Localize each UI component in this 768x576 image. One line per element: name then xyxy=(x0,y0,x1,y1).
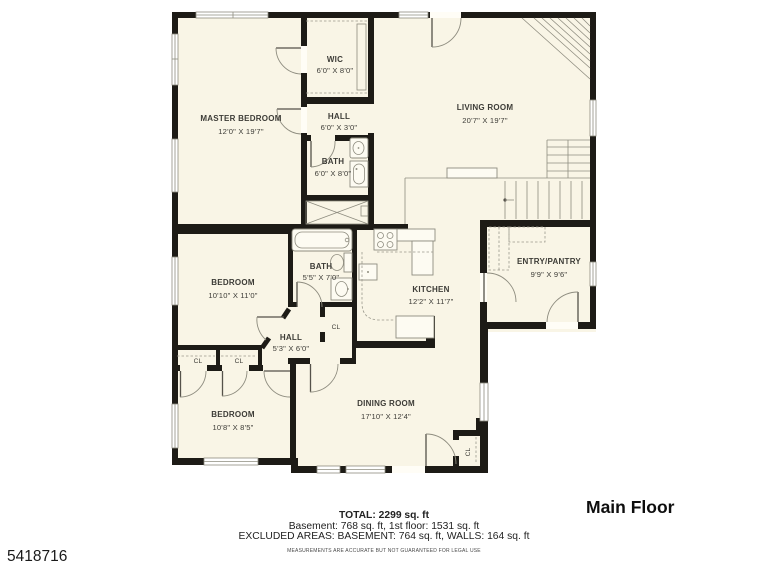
floor-plan-image: MASTER BEDROOM 12'0" X 19'7" WIC 6'0" X … xyxy=(0,0,768,576)
window xyxy=(399,12,428,18)
room-dims-bedroom-lower: 10'8" X 8'5" xyxy=(212,423,253,432)
room-dims-living-room: 20'7" X 19'7" xyxy=(462,116,508,125)
window xyxy=(204,458,258,465)
window xyxy=(172,404,178,448)
room-label-kitchen: KITCHEN xyxy=(412,285,449,294)
room-dims-master-bedroom: 12'0" X 19'7" xyxy=(218,127,264,136)
room-dims-entry-pantry: 9'9" X 9'6" xyxy=(531,270,568,279)
floor-title: Main Floor xyxy=(586,497,696,518)
room-dims-bath-main: 5'5" X 7'0" xyxy=(303,273,340,282)
floor-plan-page: MASTER BEDROOM 12'0" X 19'7" WIC 6'0" X … xyxy=(0,0,768,576)
closet-label: CL xyxy=(465,447,472,456)
window xyxy=(480,383,488,421)
room-label-bath-upper: BATH xyxy=(322,157,345,166)
room-dims-dining-room: 17'10" X 12'4" xyxy=(361,412,411,421)
closet-label: CL xyxy=(235,358,244,365)
listing-id: 5418716 xyxy=(7,548,67,566)
excluded-areas-text: EXCLUDED AREAS: BASEMENT: 764 sq. ft, WA… xyxy=(0,532,768,543)
window xyxy=(172,257,178,305)
bathtub-icon xyxy=(292,229,352,251)
room-dims-hall-lower: 5'3" X 6'0" xyxy=(273,344,310,353)
toilet-icon xyxy=(350,138,368,158)
room-label-bedroom-lower: BEDROOM xyxy=(211,410,255,419)
room-dims-hall-upper: 6'0" X 3'0" xyxy=(321,123,358,132)
room-label-bath-main: BATH xyxy=(310,262,333,271)
room-label-master-bedroom: MASTER BEDROOM xyxy=(200,114,281,123)
window xyxy=(346,466,385,473)
window xyxy=(172,34,178,85)
window xyxy=(172,139,178,192)
window xyxy=(590,262,596,286)
room-label-living-room: LIVING ROOM xyxy=(457,103,514,112)
room-dims-wic: 6'0" X 8'0" xyxy=(317,66,354,75)
closet-label: CL xyxy=(194,358,203,365)
room-label-wic: WIC xyxy=(327,55,343,64)
room-label-hall-lower: HALL xyxy=(280,333,302,342)
room-label-dining-room: DINING ROOM xyxy=(357,399,415,408)
window xyxy=(317,466,340,473)
disclaimer-text: MEASUREMENTS ARE ACCURATE BUT NOT GUARAN… xyxy=(0,548,768,554)
cooktop-icon xyxy=(374,229,397,250)
window xyxy=(196,12,268,18)
window xyxy=(590,100,596,136)
room-label-hall-upper: HALL xyxy=(328,112,350,121)
room-label-entry-pantry: ENTRY/PANTRY xyxy=(517,257,581,266)
room-dims-kitchen: 12'2" X 11'7" xyxy=(409,297,454,306)
shower-icon xyxy=(350,161,368,187)
room-dims-bath-upper: 6'0" X 8'0" xyxy=(315,169,352,178)
room-dims-bedroom-mid: 10'10" X 11'0" xyxy=(208,291,257,300)
closet-label: CL xyxy=(332,324,341,331)
room-label-bedroom-mid: BEDROOM xyxy=(211,278,255,287)
